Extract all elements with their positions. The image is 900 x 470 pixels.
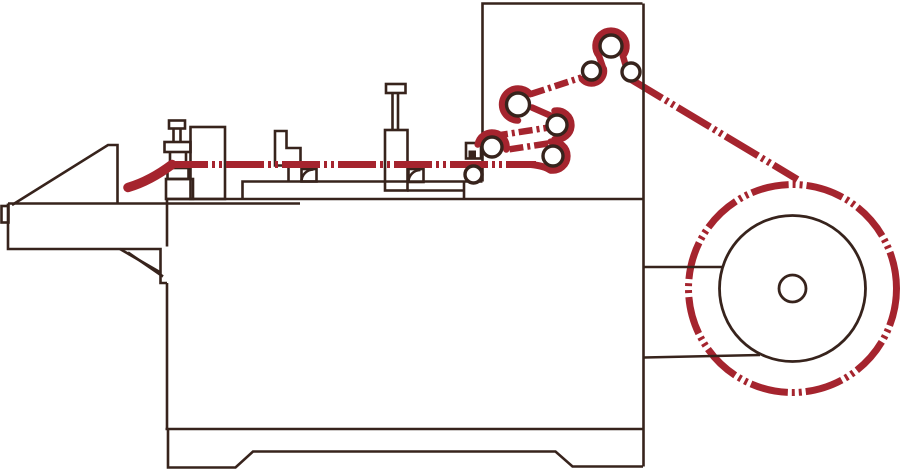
- machine-structure: [2, 4, 645, 468]
- roll-arm-lower: [644, 355, 760, 358]
- web-span-a-b: [508, 144, 548, 150]
- entry-guide-bracket: [165, 121, 194, 200]
- web-span-c-d: [532, 108, 553, 117]
- clamp-box-block: [469, 151, 477, 159]
- platform: [243, 182, 483, 200]
- machine-diagram: [0, 0, 900, 470]
- machine-schematic-svg: [0, 0, 900, 470]
- step-bracket-outline: [275, 131, 301, 166]
- web-span-to-roll: [630, 79, 798, 180]
- step-bracket: [275, 131, 301, 182]
- tray-box: [8, 204, 161, 273]
- web-path: [128, 31, 897, 393]
- guide-shoe-1: [302, 169, 317, 182]
- tray-gusset: [128, 253, 163, 277]
- turner-roller-g: [622, 63, 640, 81]
- festoon-roller-c: [547, 115, 567, 135]
- material-roll: [644, 4, 866, 467]
- web-span-b-c: [494, 128, 549, 137]
- machine-body: [166, 199, 645, 468]
- festoon-roller-a: [543, 146, 563, 166]
- screw-jack-cap: [386, 84, 406, 93]
- web-span-d-e: [531, 78, 582, 95]
- festoon-roller-d: [507, 93, 530, 116]
- entry-cap: [169, 121, 185, 129]
- roll-hub-circle: [779, 275, 806, 302]
- idler-roller: [465, 166, 482, 183]
- entry-bar-upper: [165, 142, 191, 152]
- guide-shoe-1-arc: [302, 170, 314, 182]
- screw-jack: [385, 84, 408, 191]
- tray-jog: [161, 273, 168, 284]
- festoon-roller-b: [482, 137, 502, 157]
- machine-base: [168, 429, 643, 468]
- guide-shoe-2: [409, 169, 424, 182]
- turner-roller-f: [600, 35, 622, 57]
- tray-slope: [12, 145, 118, 205]
- turner-roller-e: [583, 62, 601, 80]
- entry-base-box: [166, 179, 193, 199]
- roll-outer-circle: [720, 216, 866, 362]
